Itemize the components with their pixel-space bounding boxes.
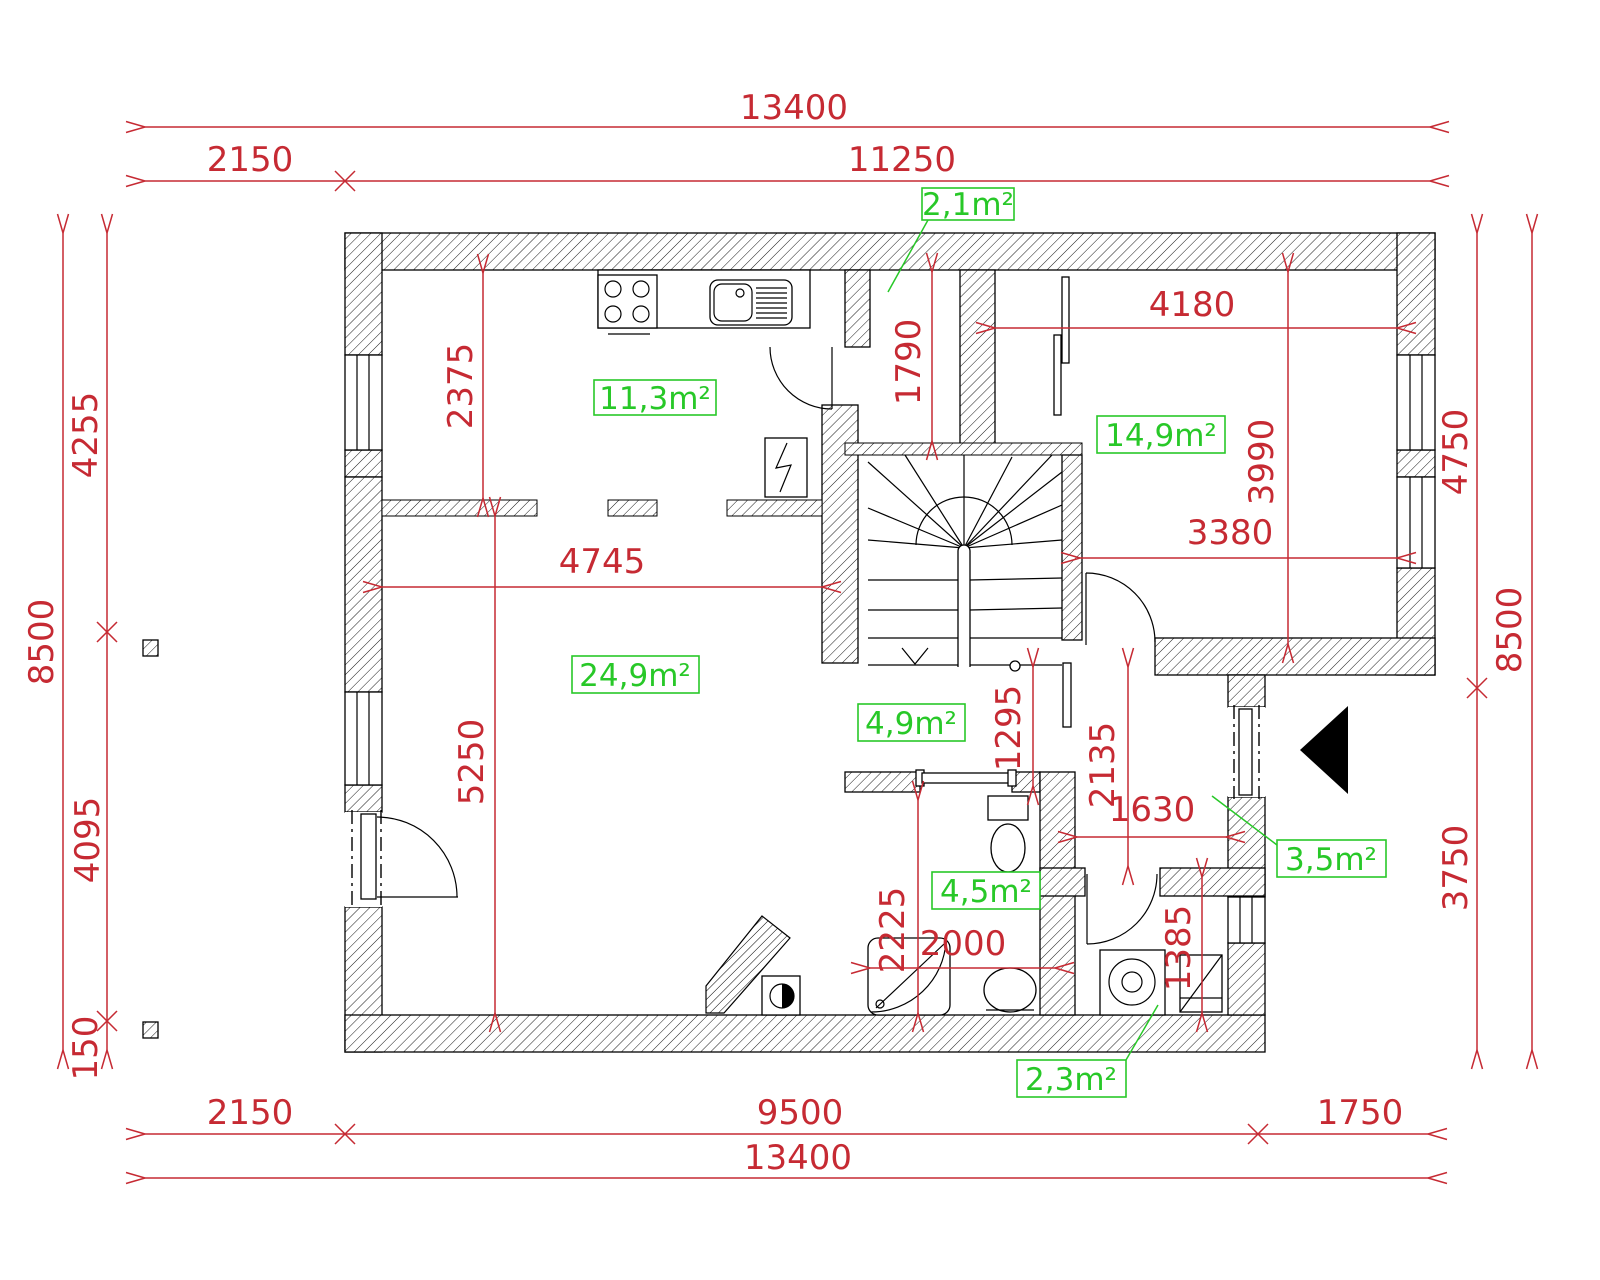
dim-corridor-width: 1630 <box>1109 790 1196 830</box>
entrance-door <box>1228 705 1265 799</box>
room-entry-hall-area: 2,1m² <box>922 187 1014 223</box>
room-corridor-area: 3,5m² <box>1285 842 1377 878</box>
dim-living-width: 4745 <box>559 542 646 582</box>
wall-bay-3 <box>1228 943 1265 1015</box>
terrace-door <box>345 810 458 909</box>
dim-right-seg-upper: 4750 <box>1436 409 1476 496</box>
staircase <box>868 455 1062 671</box>
wall-stair-right <box>1062 455 1082 640</box>
dim-bedroom-width-bottom: 3380 <box>1187 513 1274 553</box>
wall-entry-hall-right <box>960 270 995 445</box>
dim-left-seg-upper: 4255 <box>66 392 106 479</box>
dim-bottom-total: 13400 <box>744 1138 852 1178</box>
stair-hall-door-leaf <box>1063 663 1071 727</box>
dim-living-height: 5250 <box>452 719 492 806</box>
floor-plan-drawing: 13400 2150 11250 2150 9500 1750 13400 85… <box>0 0 1600 1280</box>
washing-machine-icon <box>1100 950 1165 1015</box>
utility-door <box>1087 874 1157 944</box>
dim-utility-height: 1385 <box>1159 905 1199 992</box>
wall-divider-seg1 <box>382 500 537 516</box>
room-utility-area: 2,3m² <box>1025 1062 1117 1098</box>
wall-corridor-bottom-left <box>1040 868 1085 896</box>
stair-newel <box>958 545 970 667</box>
wall-top <box>345 233 1435 270</box>
wall-left-2 <box>345 477 382 692</box>
sink-icon <box>710 280 792 325</box>
fence-post-lower <box>143 1022 158 1038</box>
wall-left-1 <box>345 233 382 355</box>
wall-step <box>1155 638 1435 675</box>
kitchen-door <box>770 347 832 409</box>
electrical-panel-icon <box>765 438 807 497</box>
interior-walls <box>382 270 1265 1015</box>
washbasin-icon <box>984 968 1036 1012</box>
window-right-upper <box>1397 355 1435 450</box>
wall-divider-seg3 <box>727 500 822 516</box>
bedroom-door <box>1086 573 1155 645</box>
room-bath-area: 4,5m² <box>940 874 1032 910</box>
bedroom-sliding-door <box>1054 277 1069 415</box>
fence-post-upper <box>143 640 158 656</box>
room-living-area: 24,9m² <box>579 658 691 694</box>
wall-stair-top <box>845 443 1082 455</box>
room-bedroom-area: 14,9m² <box>1105 418 1217 454</box>
wall-bay-1 <box>1228 675 1265 707</box>
window-left-lower <box>345 692 382 785</box>
room-wc-hall-area: 4,9m² <box>865 706 957 742</box>
wall-right-1 <box>1397 233 1435 355</box>
entrance-arrow-icon <box>1300 706 1348 794</box>
dim-top-total: 13400 <box>740 88 848 128</box>
dim-entry-hall-length: 1790 <box>889 319 929 406</box>
fireplace-icon <box>706 916 800 1015</box>
room-kitchen-area: 11,3m² <box>599 381 711 417</box>
dim-bath-width: 2000 <box>920 924 1007 964</box>
wall-divider-seg2 <box>608 500 657 516</box>
window-right-lower <box>1397 477 1435 568</box>
stove-icon <box>598 275 657 334</box>
window-bay <box>1228 897 1265 943</box>
dim-bottom-seg-left: 2150 <box>207 1093 294 1133</box>
wall-right-pier <box>1397 450 1435 477</box>
wall-left-pier-2 <box>345 785 382 812</box>
dim-wc-hall-height: 1295 <box>989 685 1029 772</box>
dim-left-total: 8500 <box>22 599 62 686</box>
dim-left-seg-mid: 4095 <box>68 797 108 884</box>
dim-bath-height: 2225 <box>873 887 913 974</box>
wall-corridor-bottom-right <box>1160 868 1265 896</box>
dim-top-seg-right: 11250 <box>848 140 956 180</box>
dim-top-seg-left: 2150 <box>207 140 294 180</box>
wall-left-pier-1 <box>345 450 382 477</box>
dim-right-total: 8500 <box>1490 587 1530 674</box>
wall-bath-top-left <box>845 772 920 792</box>
stair-post <box>1010 661 1020 671</box>
dim-bottom-seg-right: 1750 <box>1317 1093 1404 1133</box>
floor-plan-canvas: 13400 2150 11250 2150 9500 1750 13400 85… <box>0 0 1600 1280</box>
dim-right-seg-lower: 3750 <box>1436 825 1476 912</box>
toilet-icon <box>988 796 1028 872</box>
wall-bottom <box>345 1015 1265 1052</box>
dim-bedroom-height: 3990 <box>1242 419 1282 506</box>
window-left-upper <box>345 355 382 450</box>
bath-door-leaf <box>916 770 1016 786</box>
dim-left-seg-lower: 150 <box>66 1016 106 1081</box>
dim-kitchen-depth: 2375 <box>441 343 481 430</box>
wall-entry-hall-left <box>845 270 870 347</box>
dim-bottom-seg-mid: 9500 <box>757 1093 844 1133</box>
dim-bedroom-width-top: 4180 <box>1149 285 1236 325</box>
